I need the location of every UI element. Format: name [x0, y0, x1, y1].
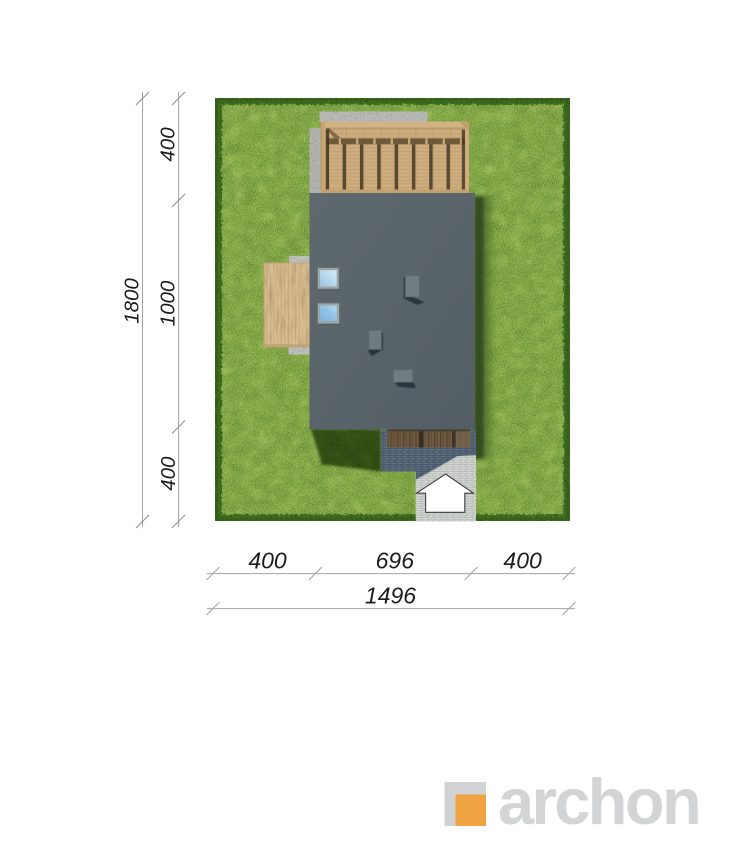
svg-text:1800: 1800: [121, 278, 144, 324]
svg-text:400: 400: [157, 127, 180, 162]
svg-text:400: 400: [248, 548, 287, 574]
svg-text:1496: 1496: [365, 582, 416, 608]
svg-text:696: 696: [376, 548, 415, 574]
svg-text:400: 400: [503, 548, 542, 574]
svg-text:archon: archon: [498, 765, 699, 838]
svg-text:400: 400: [157, 456, 180, 491]
svg-text:1000: 1000: [157, 280, 180, 326]
